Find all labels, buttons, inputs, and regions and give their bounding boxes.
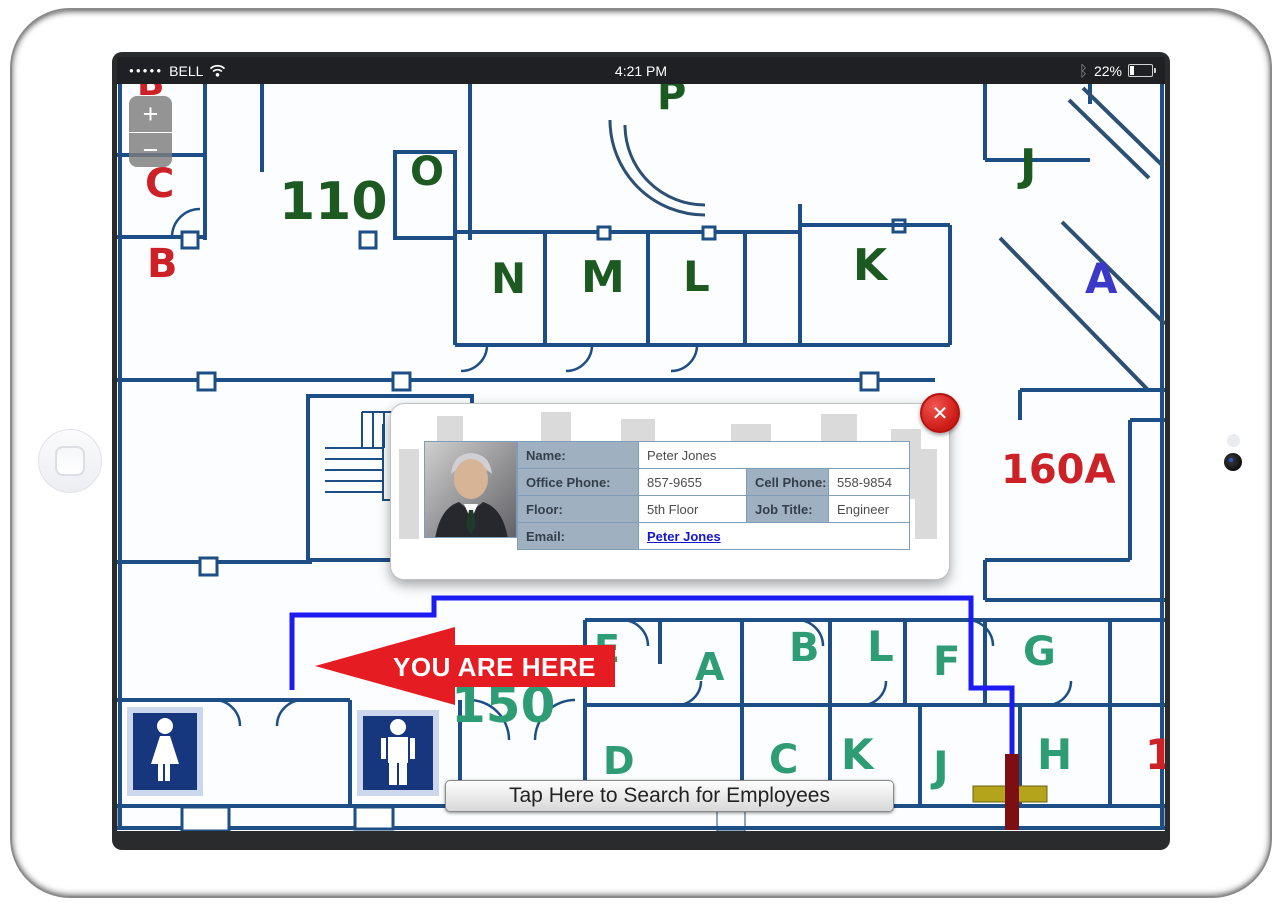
email-cell: Peter Jones — [639, 523, 910, 550]
popup-close-button[interactable]: ✕ — [920, 393, 960, 433]
zoom-out-button[interactable]: − — [129, 133, 172, 167]
you-are-here-marker: YOU ARE HERE — [315, 627, 615, 705]
carrier-label: BELL — [169, 63, 203, 79]
cell-phone-value: 558-9854 — [829, 469, 910, 496]
office-phone-value: 857-9655 — [639, 469, 747, 496]
skyline-watermark — [541, 412, 571, 442]
search-employees-button[interactable]: Tap Here to Search for Employees — [445, 780, 894, 812]
home-button-square-icon — [55, 446, 85, 476]
name-value: Peter Jones — [639, 442, 910, 469]
cell-phone-label: Cell Phone: — [747, 469, 829, 496]
job-title-value: Engineer — [829, 496, 910, 523]
skyline-watermark — [437, 416, 463, 442]
camera-icon — [1224, 453, 1242, 471]
clock-label: 4:21 PM — [117, 63, 1165, 79]
battery-percent-label: 22% — [1094, 63, 1122, 79]
status-bar: ●●●●● BELL 4:21 PM ᛒ 22% — [117, 57, 1165, 84]
skyline-watermark — [399, 449, 419, 539]
floor-label: Floor: — [518, 496, 639, 523]
bluetooth-icon: ᛒ — [1079, 62, 1088, 80]
job-title-label: Job Title: — [747, 496, 829, 523]
zoom-in-button[interactable]: + — [129, 96, 172, 133]
employee-popup: Name: Peter Jones Office Phone: 857-9655… — [390, 403, 950, 580]
skyline-watermark — [731, 424, 771, 442]
skyline-watermark — [621, 419, 655, 442]
signal-strength-icon: ●●●●● — [129, 66, 163, 75]
employee-details-table: Name: Peter Jones Office Phone: 857-9655… — [517, 441, 910, 550]
tablet-screen: ●●●●● BELL 4:21 PM ᛒ 22% — [112, 52, 1170, 850]
employee-photo — [424, 441, 517, 538]
home-button[interactable] — [38, 429, 102, 493]
office-phone-label: Office Phone: — [518, 469, 639, 496]
destination-marker — [973, 754, 1047, 830]
battery-icon — [1128, 64, 1153, 77]
name-label: Name: — [518, 442, 639, 469]
you-are-here-label: YOU ARE HERE — [377, 652, 612, 683]
wifi-icon — [209, 64, 226, 77]
skyline-watermark — [915, 449, 937, 539]
floorplan-map[interactable]: B C B 110 O P N M L K J A 160A 150 E A B… — [117, 84, 1165, 831]
email-link[interactable]: Peter Jones — [647, 529, 721, 544]
email-label: Email: — [518, 523, 639, 550]
map-zoom-control: + − — [129, 96, 172, 167]
skyline-watermark — [821, 414, 857, 442]
ambient-sensor-dot — [1227, 434, 1240, 447]
camera-glint — [1229, 458, 1233, 462]
floor-value: 5th Floor — [639, 496, 747, 523]
